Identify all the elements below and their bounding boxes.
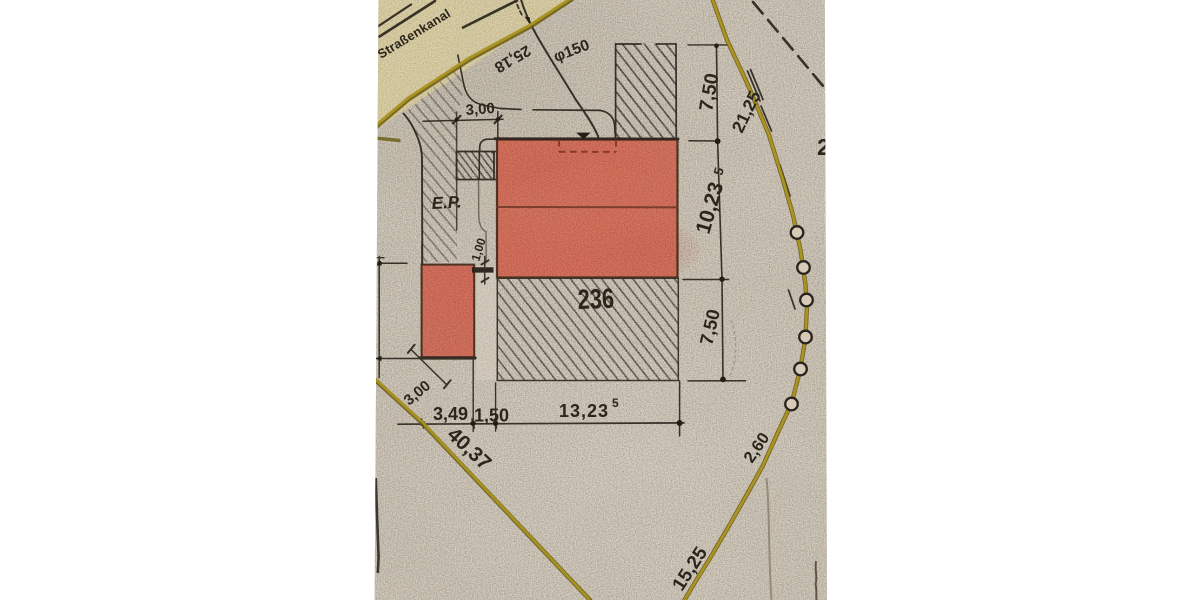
svg-text:236: 236: [577, 283, 615, 315]
svg-text:13,23: 13,23: [559, 401, 609, 421]
svg-text:3,00: 3,00: [465, 100, 495, 119]
svg-text:3,49: 3,49: [433, 404, 468, 424]
svg-text:E.P.: E.P.: [431, 192, 462, 213]
svg-text:1,50: 1,50: [474, 406, 509, 426]
svg-text:5: 5: [612, 396, 619, 410]
